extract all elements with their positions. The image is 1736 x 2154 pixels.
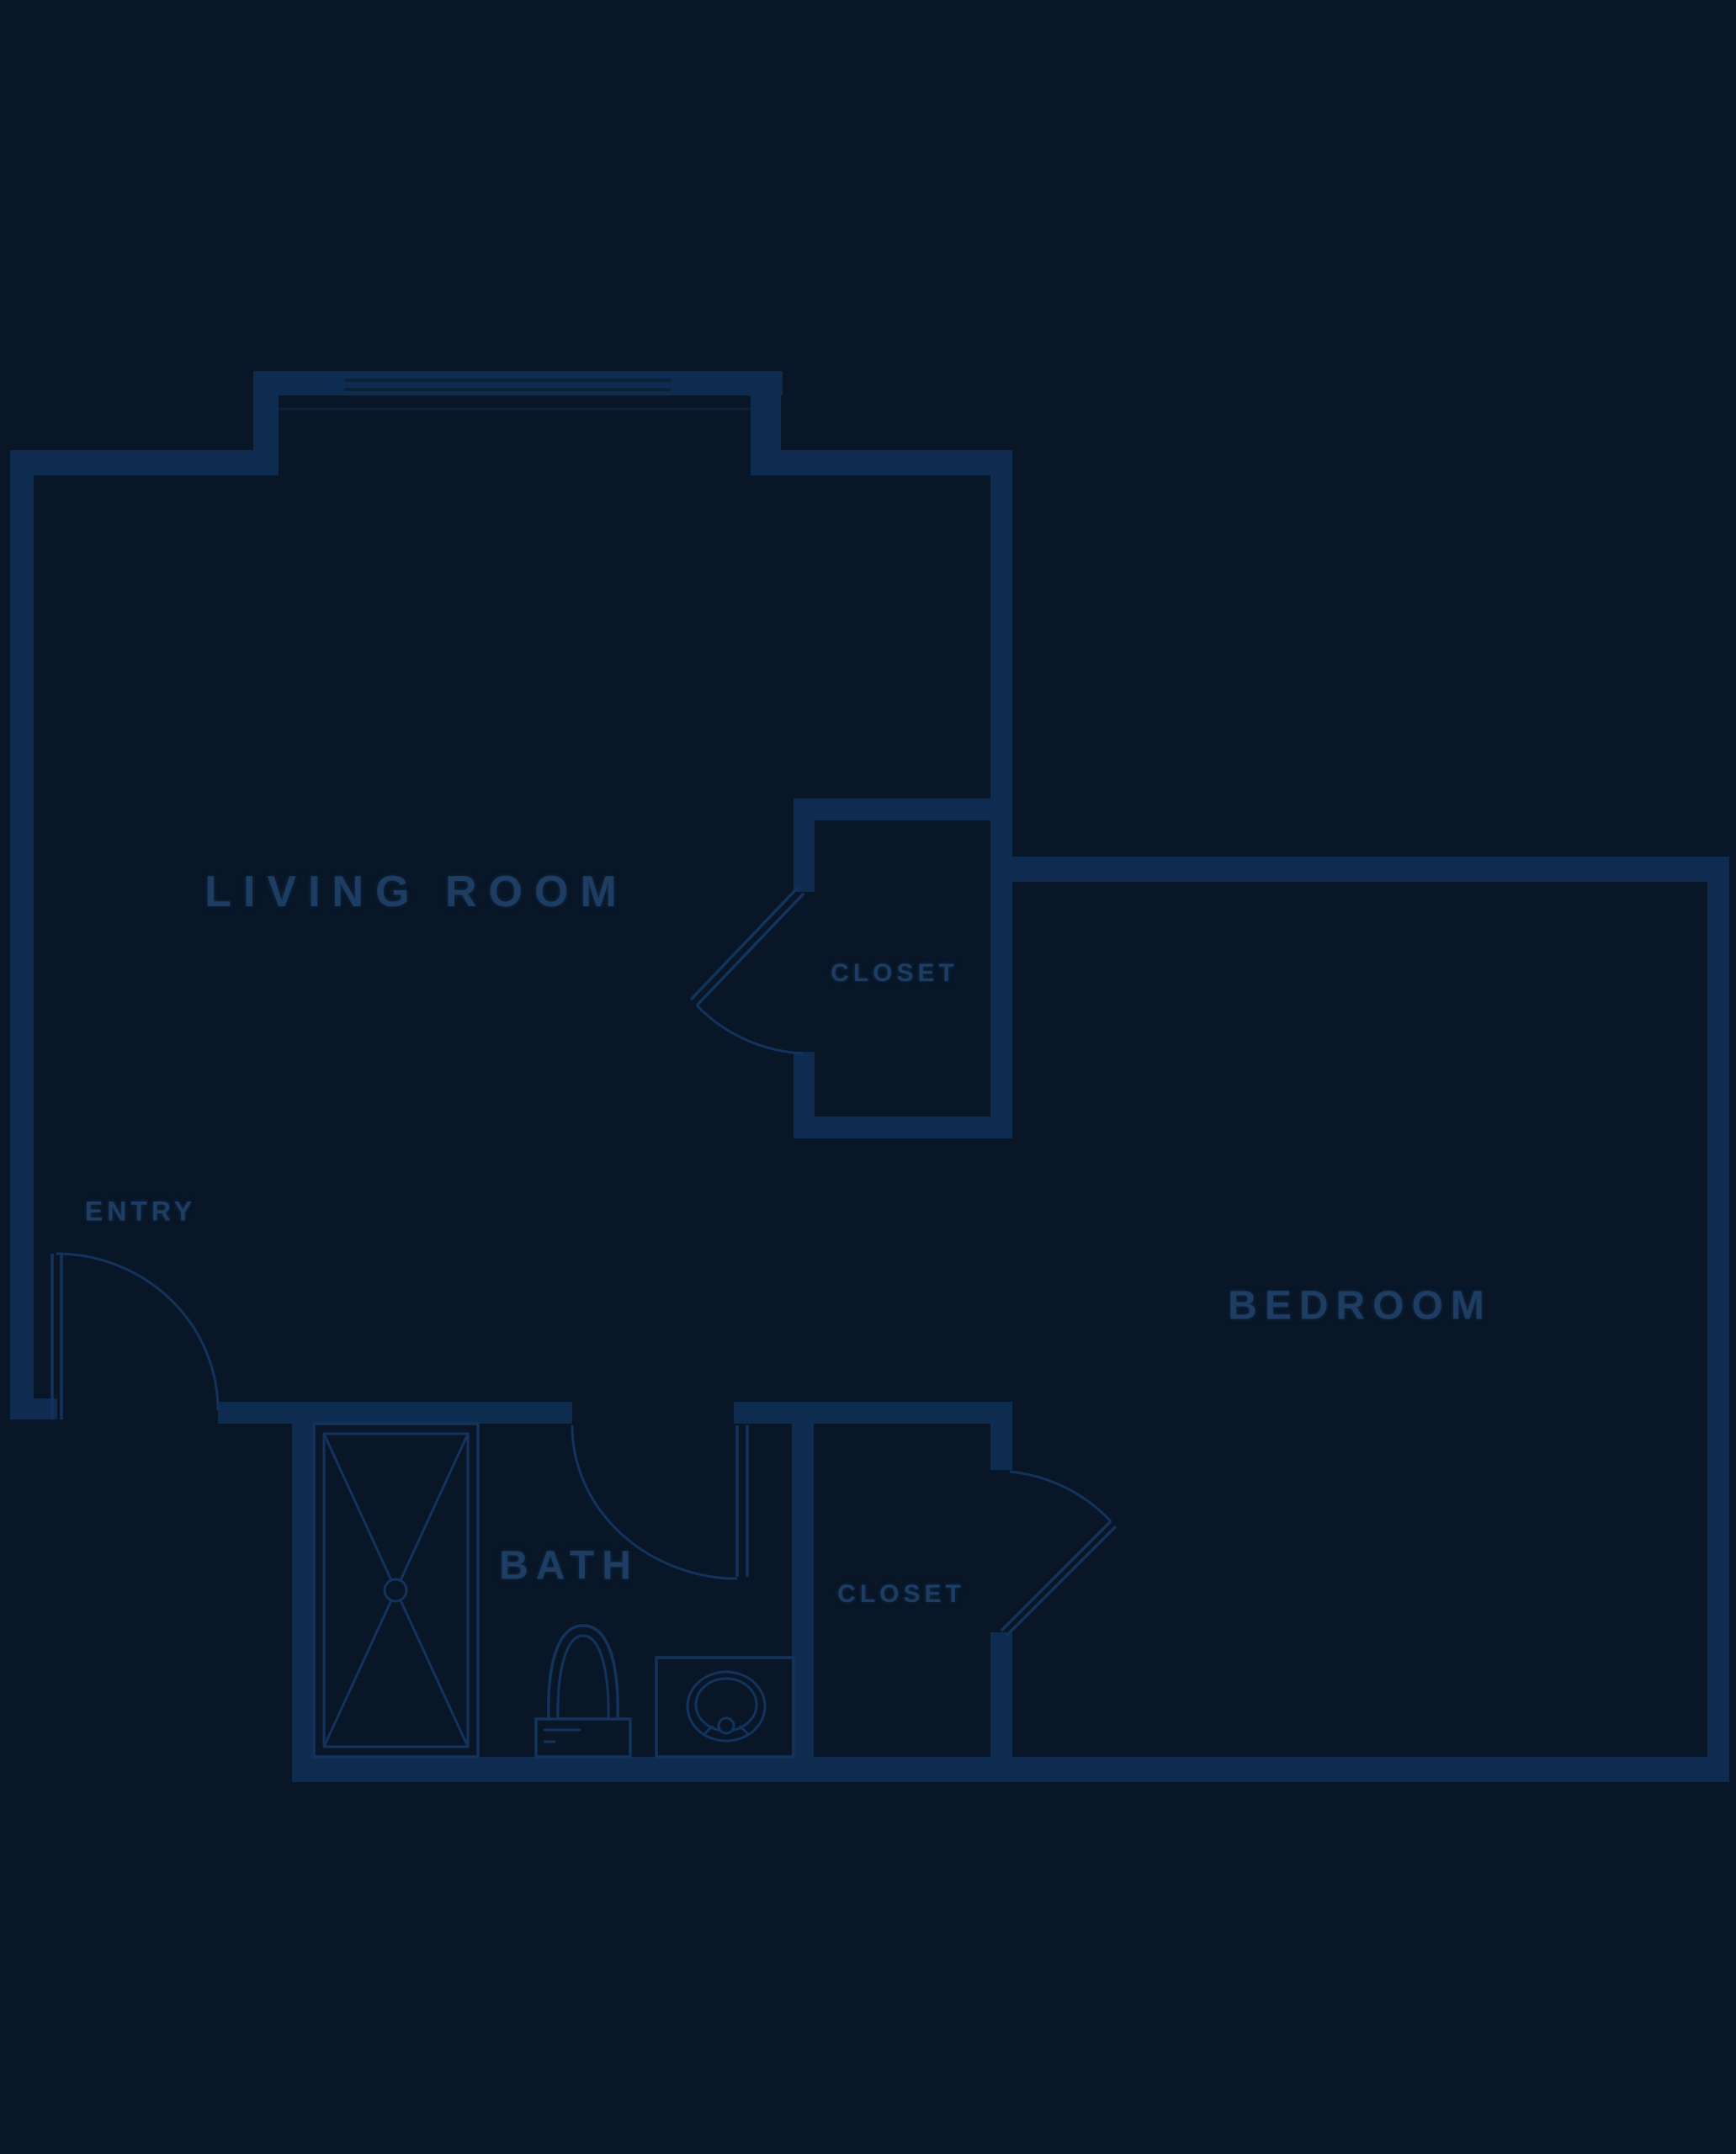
room-label-bedroom: BEDROOM (1228, 1283, 1492, 1329)
entry-door-panel (52, 1254, 61, 1419)
bedroom-closet-door-panel (1001, 1521, 1116, 1636)
floorplan-drawing (0, 0, 1736, 2154)
wall-bedroom-top (1012, 857, 1729, 882)
sink-faucet (719, 1718, 734, 1733)
room-label-bedroom-closet: CLOSET (837, 1580, 965, 1609)
shower-drain (385, 1579, 406, 1601)
wall-divider (990, 450, 1012, 1138)
wall-bedroom-closet-top (734, 1402, 1012, 1424)
living-closet-door-swing-arc (697, 1005, 803, 1053)
bedroom-closet-door-swing-arc (1010, 1472, 1111, 1521)
bath-door-panel (737, 1425, 747, 1577)
floorplan: LIVING ROOM CLOSET ENTRY BEDROOM BATH CL… (0, 0, 1736, 2154)
living-closet-door (691, 888, 804, 1053)
living-closet-door-panel (691, 888, 804, 1005)
wall-top-right (751, 450, 1012, 475)
sink-icon (656, 1658, 794, 1757)
entry-door (52, 1254, 218, 1419)
toilet-tank (536, 1719, 630, 1757)
room-label-living-closet: CLOSET (831, 959, 958, 988)
wall-bedroom-closet-right-lower (990, 1632, 1012, 1757)
wall-living-closet-left-upper (794, 798, 815, 892)
wall-bottom (292, 1757, 1729, 1782)
walls (10, 371, 1729, 1782)
wall-bedroom-closet-right-upper (990, 1424, 1012, 1470)
wall-top-left (10, 450, 279, 475)
wall-left (10, 450, 34, 1419)
wall-bedroom-closet-left (792, 1424, 814, 1757)
room-label-bath: BATH (499, 1543, 639, 1589)
room-label-living-room: LIVING ROOM (204, 867, 629, 917)
wall-bath-top (218, 1402, 572, 1424)
wall-bedroom-right (1707, 857, 1729, 1782)
toilet-icon (536, 1626, 630, 1757)
shower-icon (314, 1424, 478, 1757)
toilet-tank-detail (544, 1730, 581, 1742)
toilet-bowl-inner (558, 1636, 608, 1719)
wall-living-closet-top (794, 798, 990, 820)
wall-living-closet-bottom (794, 1117, 990, 1138)
entry-door-swing-arc (56, 1254, 218, 1410)
wall-entry-jamb (34, 1398, 57, 1419)
bedroom-closet-door (1001, 1472, 1116, 1636)
wall-notch-top (253, 371, 783, 395)
wall-bath-left (292, 1402, 314, 1782)
room-label-entry: ENTRY (85, 1196, 196, 1228)
